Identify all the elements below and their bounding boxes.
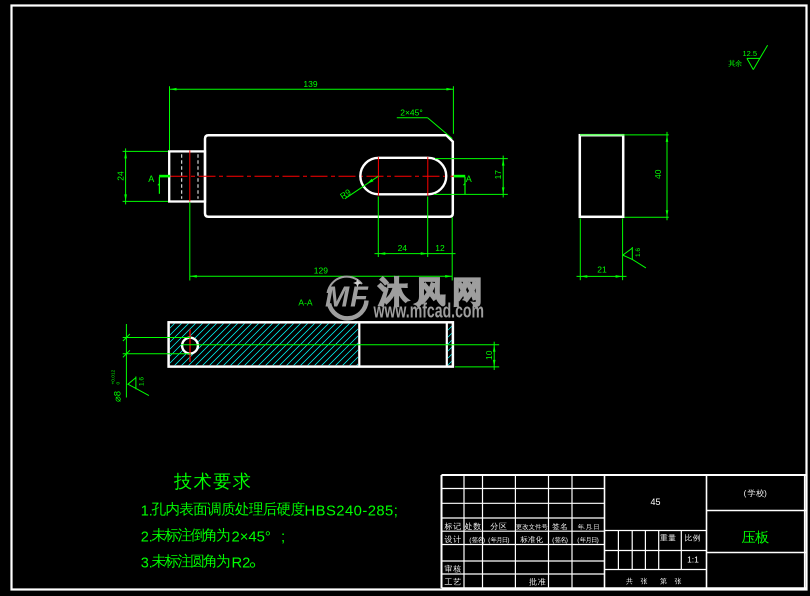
svg-text:3.: 3.	[141, 555, 153, 571]
svg-text:40: 40	[653, 169, 663, 179]
svg-text:12.5: 12.5	[743, 49, 758, 58]
svg-text:12: 12	[435, 243, 445, 253]
svg-text:(: (	[744, 489, 747, 498]
svg-text:⌀8: ⌀8	[113, 391, 124, 402]
svg-text:2×45°: 2×45°	[232, 529, 271, 545]
svg-text:MF: MF	[325, 282, 369, 314]
svg-text:129: 129	[314, 265, 328, 275]
svg-text:): )	[483, 537, 485, 544]
svg-text:.: .	[583, 524, 585, 531]
svg-text:0: 0	[116, 382, 122, 385]
svg-text:A-A: A-A	[298, 298, 313, 308]
svg-text:A: A	[148, 174, 154, 184]
svg-text:www.mfcad.com: www.mfcad.com	[373, 300, 484, 322]
svg-text:139: 139	[303, 79, 317, 89]
svg-text:A: A	[466, 174, 472, 184]
svg-text:1.: 1.	[141, 503, 153, 519]
svg-text:24: 24	[115, 171, 125, 181]
svg-text:2×45°: 2×45°	[400, 107, 423, 117]
svg-text:;: ;	[281, 529, 285, 545]
svg-text:): )	[507, 537, 509, 544]
svg-text:10: 10	[484, 350, 494, 360]
svg-text:1.6: 1.6	[635, 248, 642, 257]
svg-text:2.: 2.	[141, 529, 153, 545]
svg-text:24: 24	[398, 243, 408, 253]
svg-text:R2: R2	[232, 555, 251, 571]
svg-text:1:1: 1:1	[687, 555, 699, 565]
svg-text:1.6: 1.6	[139, 377, 146, 386]
svg-text:21: 21	[597, 265, 607, 275]
svg-text:17: 17	[493, 170, 503, 180]
svg-text:): )	[764, 489, 767, 498]
svg-text:): )	[597, 537, 599, 544]
svg-text:45: 45	[650, 497, 660, 507]
svg-text:): )	[566, 537, 568, 544]
svg-text:.: .	[591, 524, 593, 531]
svg-text:HBS240-285;: HBS240-285;	[305, 503, 399, 519]
